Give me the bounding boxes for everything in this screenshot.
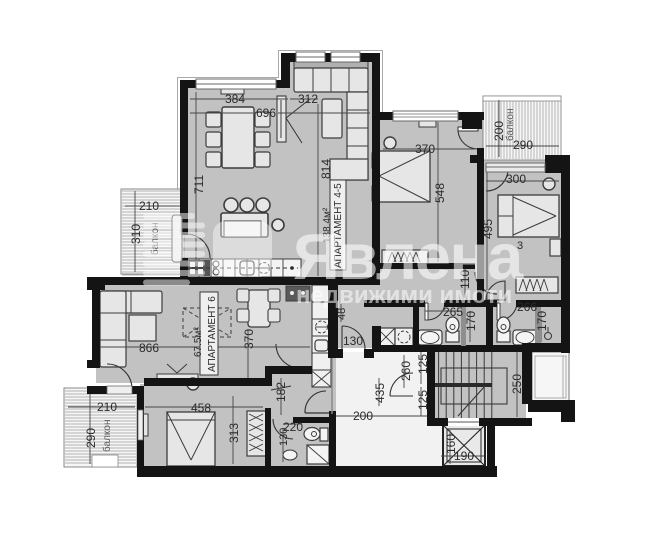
svg-text:312: 312	[298, 92, 318, 106]
svg-text:696: 696	[256, 106, 276, 120]
svg-text:210: 210	[97, 400, 117, 414]
svg-text:370: 370	[415, 142, 435, 156]
svg-text:548: 548	[433, 183, 447, 203]
svg-text:260: 260	[399, 361, 413, 381]
svg-text:130: 130	[343, 334, 363, 348]
svg-text:200: 200	[492, 121, 506, 141]
svg-text:458: 458	[191, 401, 211, 415]
svg-text:130: 130	[278, 428, 290, 446]
svg-text:170: 170	[464, 311, 478, 331]
svg-text:190: 190	[454, 449, 474, 463]
svg-text:310: 310	[129, 224, 143, 244]
svg-text:313: 313	[227, 423, 241, 443]
svg-text:125: 125	[416, 354, 430, 374]
svg-text:48: 48	[336, 308, 348, 320]
svg-text:300: 300	[506, 172, 526, 186]
svg-text:290: 290	[513, 138, 533, 152]
svg-text:балкон: балкон	[504, 109, 516, 141]
svg-text:182: 182	[274, 382, 288, 402]
svg-text:384: 384	[225, 92, 245, 106]
svg-text:170: 170	[535, 311, 549, 331]
svg-text:250: 250	[510, 374, 524, 394]
svg-text:АПАРТАМЕНТ 6: АПАРТАМЕНТ 6	[207, 296, 218, 372]
svg-text:866: 866	[139, 341, 159, 355]
svg-text:370: 370	[242, 329, 256, 349]
svg-text:балкон: балкон	[101, 420, 113, 452]
svg-text:290: 290	[84, 428, 98, 448]
svg-text:недвижими имоти: недвижими имоти	[296, 282, 512, 309]
svg-text:67.5м²: 67.5м²	[193, 327, 204, 357]
svg-text:200: 200	[353, 409, 373, 423]
svg-text:435: 435	[373, 383, 387, 403]
svg-text:711: 711	[192, 175, 206, 194]
svg-text:814: 814	[319, 159, 333, 179]
svg-text:210: 210	[139, 199, 159, 213]
svg-text:125: 125	[416, 390, 430, 410]
